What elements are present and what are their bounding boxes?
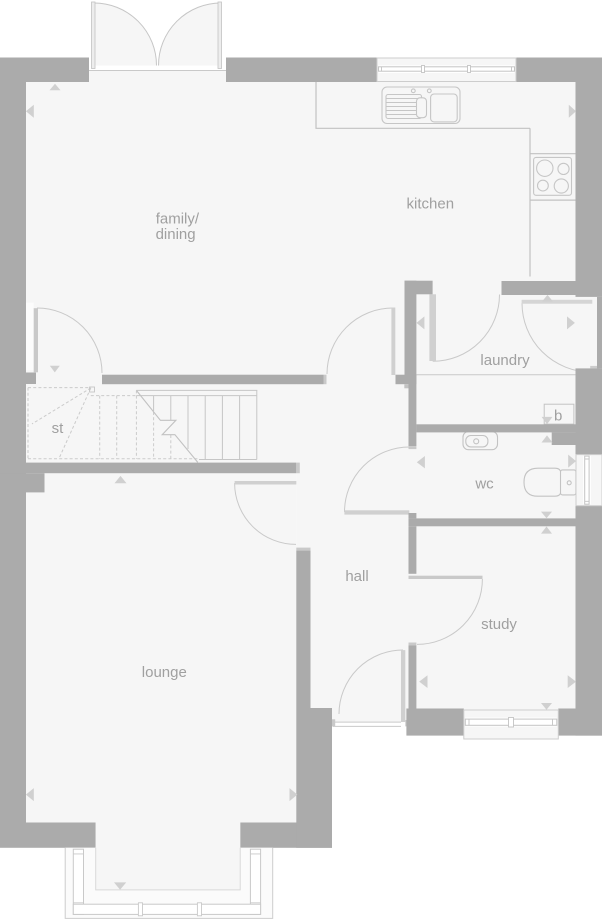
svg-text:study: study <box>481 616 517 633</box>
svg-text:st: st <box>52 420 65 437</box>
svg-text:dining: dining <box>156 226 196 243</box>
svg-text:kitchen: kitchen <box>407 196 455 213</box>
svg-text:b: b <box>554 408 562 425</box>
svg-text:hall: hall <box>345 568 368 585</box>
svg-text:lounge: lounge <box>142 664 187 681</box>
svg-text:family/: family/ <box>156 210 200 227</box>
svg-text:wc: wc <box>474 476 494 493</box>
svg-text:laundry: laundry <box>480 352 530 369</box>
